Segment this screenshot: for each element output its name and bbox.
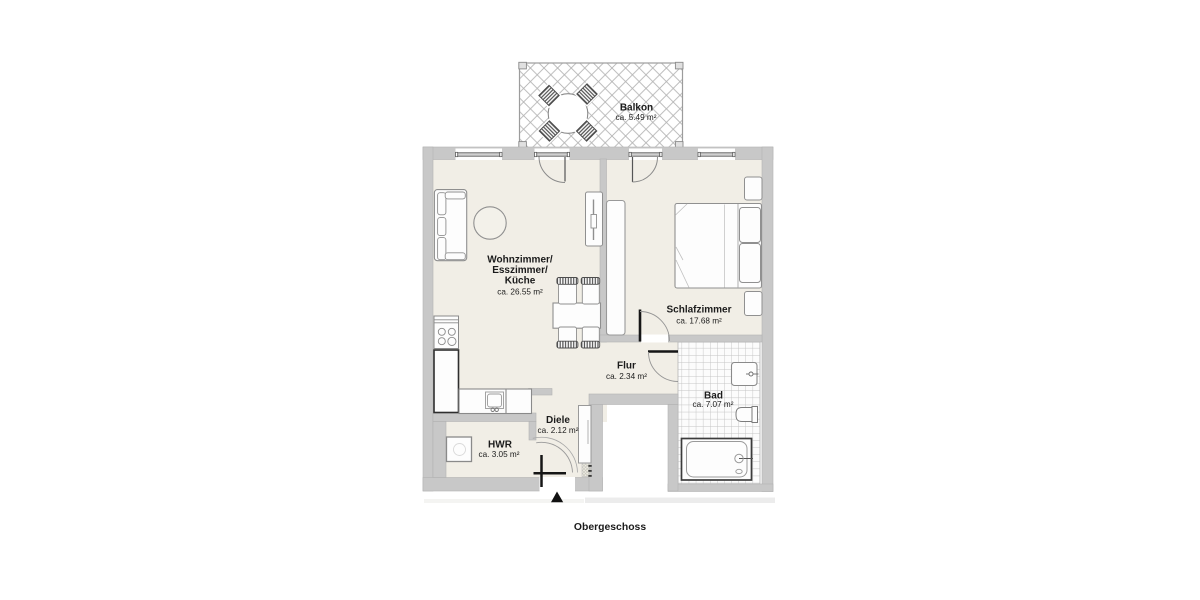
svg-text:ca. 26.55 m²: ca. 26.55 m² xyxy=(497,288,543,297)
svg-text:ca. 2.12 m²: ca. 2.12 m² xyxy=(538,426,579,435)
svg-text:Küche: Küche xyxy=(505,276,536,287)
svg-text:ca. 17.68 m²: ca. 17.68 m² xyxy=(676,317,722,326)
svg-text:ca. 2.34 m²: ca. 2.34 m² xyxy=(606,372,647,381)
svg-text:ca. 5.49 m²: ca. 5.49 m² xyxy=(616,113,657,122)
svg-text:Diele: Diele xyxy=(546,415,570,426)
svg-text:Esszimmer/: Esszimmer/ xyxy=(492,265,548,276)
svg-text:Obergeschoss: Obergeschoss xyxy=(574,522,646,533)
svg-text:Schlafzimmer: Schlafzimmer xyxy=(666,305,731,316)
svg-text:Wohnzimmer/: Wohnzimmer/ xyxy=(487,255,553,266)
svg-text:ca. 7.07 m²: ca. 7.07 m² xyxy=(693,400,734,409)
svg-text:ca. 3.05 m²: ca. 3.05 m² xyxy=(479,450,520,459)
svg-text:Flur: Flur xyxy=(617,361,636,372)
svg-text:HWR: HWR xyxy=(488,440,513,451)
